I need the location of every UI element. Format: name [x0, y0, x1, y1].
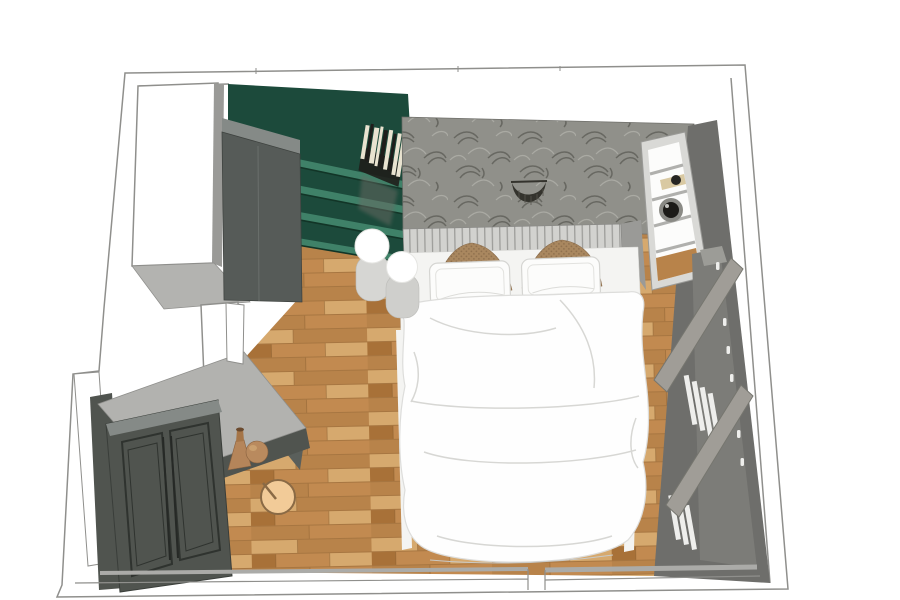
sideboard-white-panel	[226, 303, 244, 364]
double-bed	[396, 240, 648, 563]
bedroom-render-canvas	[0, 0, 900, 600]
bedroom-3d-render	[0, 0, 900, 600]
round-speaker	[659, 198, 683, 222]
sphere-lamp-1	[355, 229, 389, 263]
double-door-wardrobe	[106, 400, 232, 592]
stool-lamp-2	[386, 252, 419, 319]
round-pouf	[261, 480, 295, 514]
cone-vase-mouth	[236, 428, 244, 432]
white-duvet	[400, 292, 649, 563]
stool-lamp-1	[355, 229, 390, 301]
round-jar	[246, 441, 268, 463]
window-opening-top-left	[132, 83, 218, 266]
round-jar-highlight	[249, 445, 257, 451]
sphere-lamp-2	[387, 252, 418, 283]
shelf-dark-object	[671, 175, 681, 185]
tall-wardrobe	[222, 118, 302, 302]
tall-wardrobe-front	[222, 132, 302, 302]
